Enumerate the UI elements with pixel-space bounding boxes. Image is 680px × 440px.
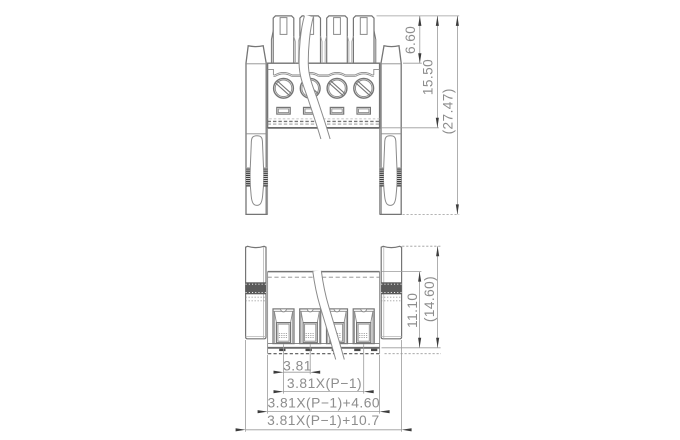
svg-text:3.81X(P−1)+10.7: 3.81X(P−1)+10.7 — [267, 413, 380, 428]
svg-text:11.10: 11.10 — [405, 293, 420, 328]
svg-text:6.60: 6.60 — [403, 26, 418, 54]
svg-text:3.81X(P−1): 3.81X(P−1) — [287, 376, 362, 391]
svg-text:(14.60): (14.60) — [422, 276, 437, 322]
svg-text:(27.47): (27.47) — [441, 88, 456, 134]
svg-text:15.50: 15.50 — [421, 59, 436, 95]
svg-text:3.81: 3.81 — [283, 358, 312, 373]
svg-text:3.81X(P−1)+4.60: 3.81X(P−1)+4.60 — [268, 395, 381, 410]
